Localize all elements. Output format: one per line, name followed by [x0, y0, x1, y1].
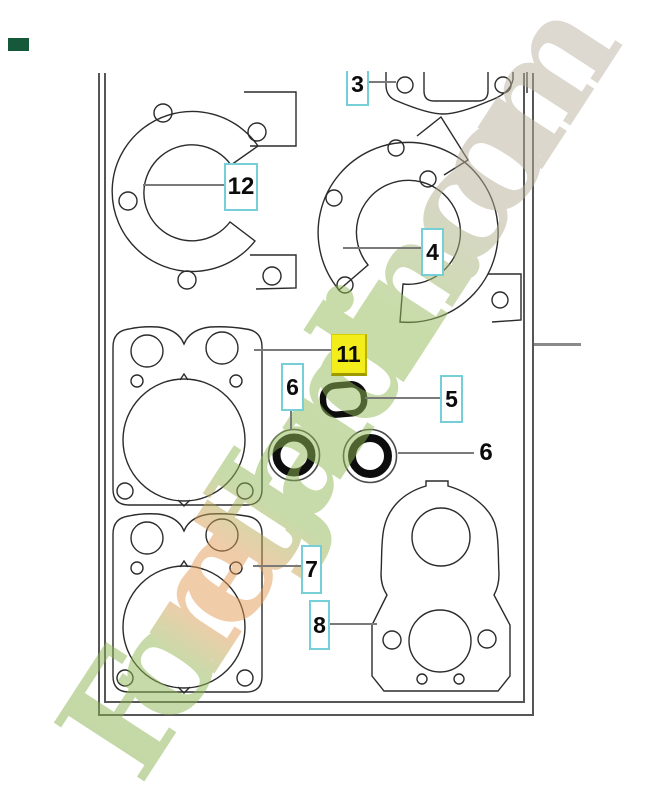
part-label-11-highlighted[interactable]: 11	[331, 334, 367, 376]
part-label-5[interactable]: 5	[440, 375, 463, 423]
part-label-7[interactable]: 7	[301, 545, 322, 594]
leader-line-3	[365, 81, 396, 83]
gasket-8-drawing	[372, 481, 510, 691]
part-label-8[interactable]: 8	[309, 600, 330, 650]
oring-6-left	[269, 430, 320, 481]
gasket-7-drawing	[113, 514, 262, 693]
leader-line-5	[365, 397, 442, 399]
leader-line-11	[254, 349, 332, 351]
part-label-6-left[interactable]: 6	[281, 363, 304, 411]
gasket-3-drawing	[386, 72, 527, 114]
leader-line-4	[343, 247, 423, 249]
part-label-12[interactable]: 12	[224, 163, 258, 211]
part-label-4[interactable]: 4	[421, 228, 444, 276]
corner-badge	[8, 38, 29, 51]
gasket-11-drawing	[113, 327, 262, 506]
gasket-4-drawing	[318, 117, 521, 322]
leader-line-12	[143, 184, 226, 186]
seal-5-ring	[322, 383, 365, 415]
part-label-3[interactable]: 3	[346, 71, 369, 106]
oring-6-right	[344, 430, 397, 483]
leader-line-8	[328, 623, 377, 625]
right-reference-line	[534, 343, 581, 346]
leader-line-7	[253, 565, 303, 567]
parts-diagram-drawing	[0, 0, 652, 800]
parts-diagram-page: ForetJardin.com 3 12 4 11 5 6 6 7 8	[0, 0, 652, 800]
gasket-12-drawing	[112, 92, 296, 289]
leader-line-6-right	[398, 452, 474, 454]
part-label-6-right[interactable]: 6	[474, 440, 498, 466]
